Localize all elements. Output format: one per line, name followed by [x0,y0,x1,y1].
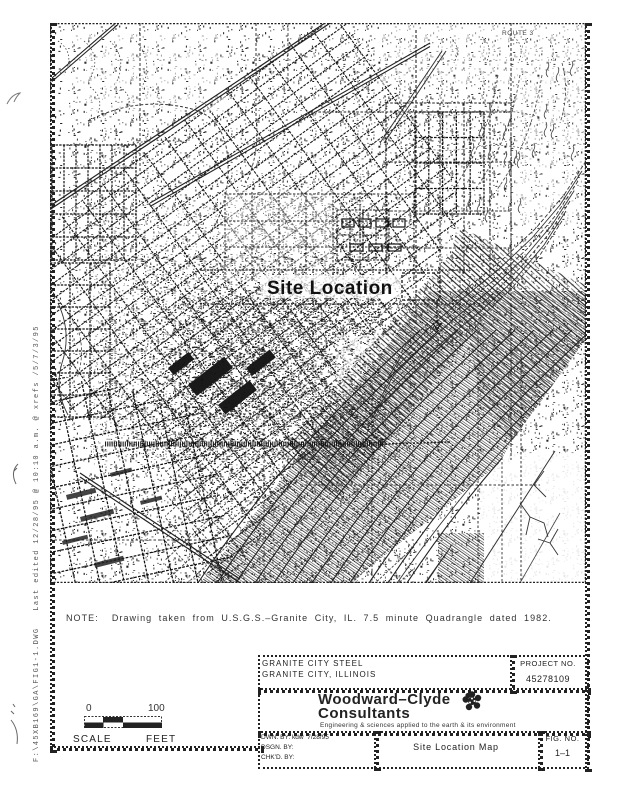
svg-text:Site Location: Site Location [267,278,393,299]
svg-text:ROUTE 3: ROUTE 3 [502,30,534,37]
